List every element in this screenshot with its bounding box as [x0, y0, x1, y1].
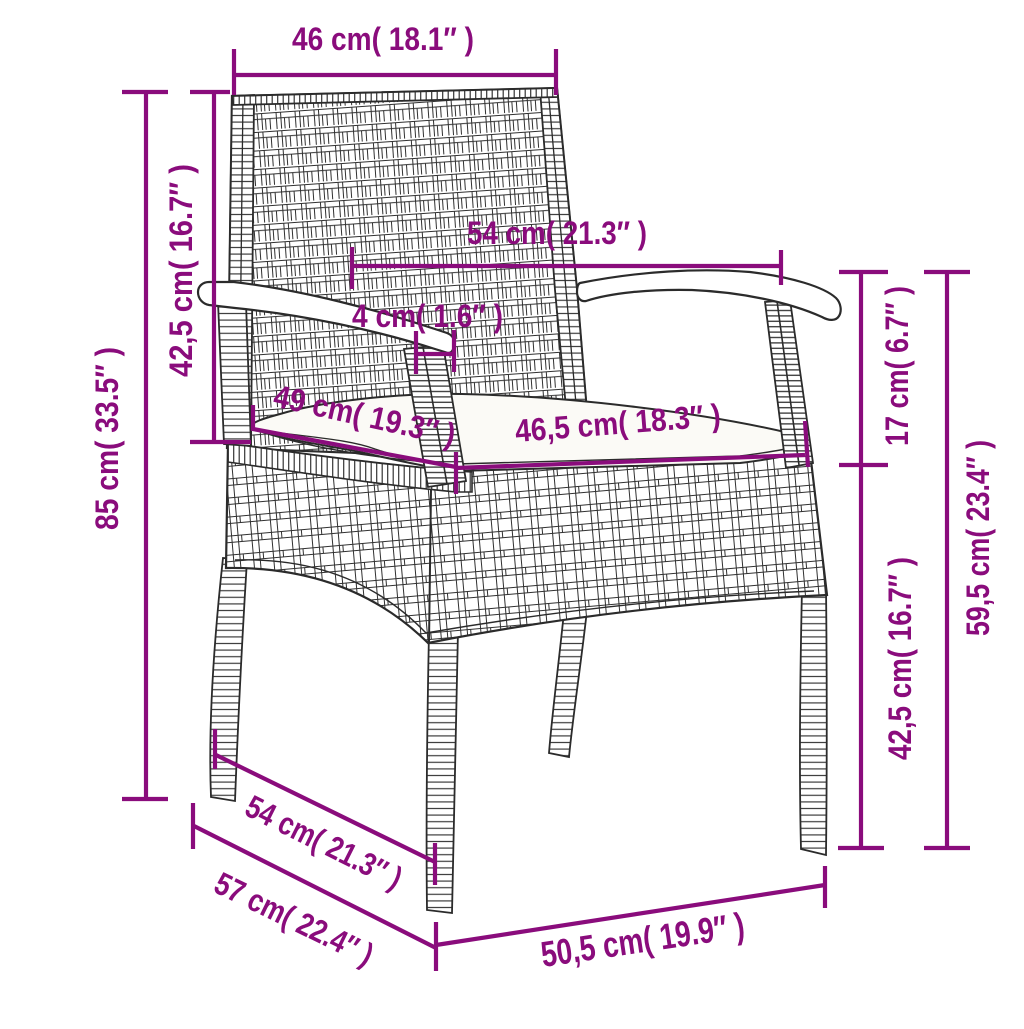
svg-text:42,5 cm( 16.7″ ): 42,5 cm( 16.7″ ): [163, 164, 199, 377]
svg-text:46 cm( 18.1″ ): 46 cm( 18.1″ ): [292, 21, 474, 57]
svg-text:59,5 cm( 23.4″ ): 59,5 cm( 23.4″ ): [960, 440, 996, 636]
svg-text:17 cm( 6.7″ ): 17 cm( 6.7″ ): [879, 286, 915, 446]
svg-text:4 cm( 1.6″ ): 4 cm( 1.6″ ): [352, 298, 503, 334]
svg-text:42,5 cm( 16.7″ ): 42,5 cm( 16.7″ ): [882, 557, 918, 760]
svg-text:85 cm( 33.5″ ): 85 cm( 33.5″ ): [89, 347, 125, 530]
svg-text:54 cm( 21.3″ ): 54 cm( 21.3″ ): [467, 215, 647, 251]
